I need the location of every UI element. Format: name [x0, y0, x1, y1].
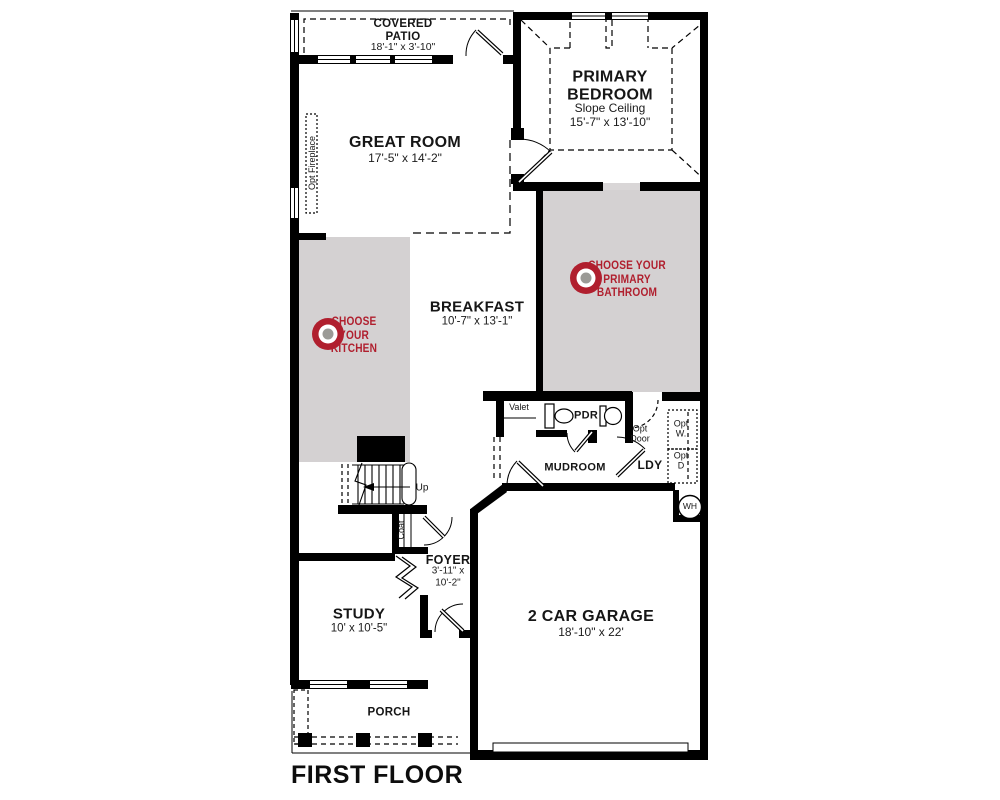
plan-title: FIRST FLOOR	[291, 761, 463, 790]
room-label-great-room: GREAT ROOM	[305, 134, 505, 152]
room-dims-primary-bedroom: 15'-7" x 13'-10"	[540, 116, 680, 130]
room-dims-garage: 18'-10" x 22'	[521, 626, 661, 640]
room-label-porch: PORCH	[367, 706, 410, 719]
porch-edge-dashed	[294, 737, 458, 744]
opt-fireplace-label: Opt Fireplace	[307, 136, 317, 190]
floorplan-linework	[0, 0, 1000, 800]
porch-slab-line	[292, 691, 470, 753]
bath-opening	[603, 183, 640, 190]
choose-primary-bathroom-label: CHOOSE YOUR PRIMARY BATHROOM	[575, 260, 679, 301]
stair-chase	[357, 436, 405, 462]
water-heater-label: WH	[683, 502, 697, 512]
room-label-pdr: PDR	[574, 410, 598, 423]
opt-washer-label: Opt W.	[670, 419, 692, 440]
stairs-up-label: Up	[416, 482, 429, 494]
choose-kitchen-label: CHOOSE YOUR KITCHEN	[315, 316, 392, 357]
room-label-garage: 2 CAR GARAGE	[491, 608, 691, 626]
room-label-study: STUDY	[299, 605, 419, 622]
stair-break-line	[355, 463, 366, 505]
room-label-mudroom: MUDROOM	[544, 462, 605, 475]
pdr-sink	[555, 409, 573, 423]
room-label-breakfast: BREAKFAST	[407, 298, 547, 315]
room-dims-foyer: 3'-11" x 10'-2"	[424, 566, 472, 589]
valet-label: Valet	[509, 402, 529, 412]
room-label-primary-bedroom: PRIMARY BEDROOM	[550, 69, 670, 106]
stairs	[352, 463, 416, 505]
room-note-primary-bedroom: Slope Ceiling	[550, 102, 670, 116]
pdr-door-arc	[567, 433, 575, 452]
porch-post	[298, 733, 312, 747]
mudroom-opening	[494, 437, 500, 481]
opt-dryer-label: Opt D	[670, 451, 692, 472]
study-opening-zigzag	[396, 556, 418, 599]
stair-newel	[402, 463, 416, 505]
bedroom-door-arc	[519, 139, 551, 152]
floorplan: COVERED PATIO 18'-1" x 3'-10" GREAT ROOM…	[0, 0, 1000, 800]
porch-post	[356, 733, 370, 747]
garage-door	[493, 743, 688, 752]
choose-primary-bathroom-hotspot[interactable]: CHOOSE YOUR PRIMARY BATHROOM	[568, 260, 686, 301]
room-label-ldy: LDY	[638, 459, 663, 473]
room-dims-study: 10' x 10'-5"	[304, 622, 414, 635]
coat-label: Coat	[396, 520, 406, 539]
room-dims-covered-patio: 18'-1" x 3'-10"	[343, 41, 463, 53]
room-dims-great-room: 17'-5" x 14'-2"	[335, 152, 475, 166]
room-dims-breakfast: 10'-7" x 13'-1"	[412, 315, 542, 328]
porch-post	[418, 733, 432, 747]
opt-door-label: Opt Door	[625, 424, 655, 445]
pdr-vanity	[545, 404, 554, 428]
patio-door-arc	[466, 30, 476, 56]
choose-kitchen-hotspot[interactable]: CHOOSE YOUR KITCHEN	[310, 316, 398, 357]
toilet-bowl	[605, 408, 622, 425]
